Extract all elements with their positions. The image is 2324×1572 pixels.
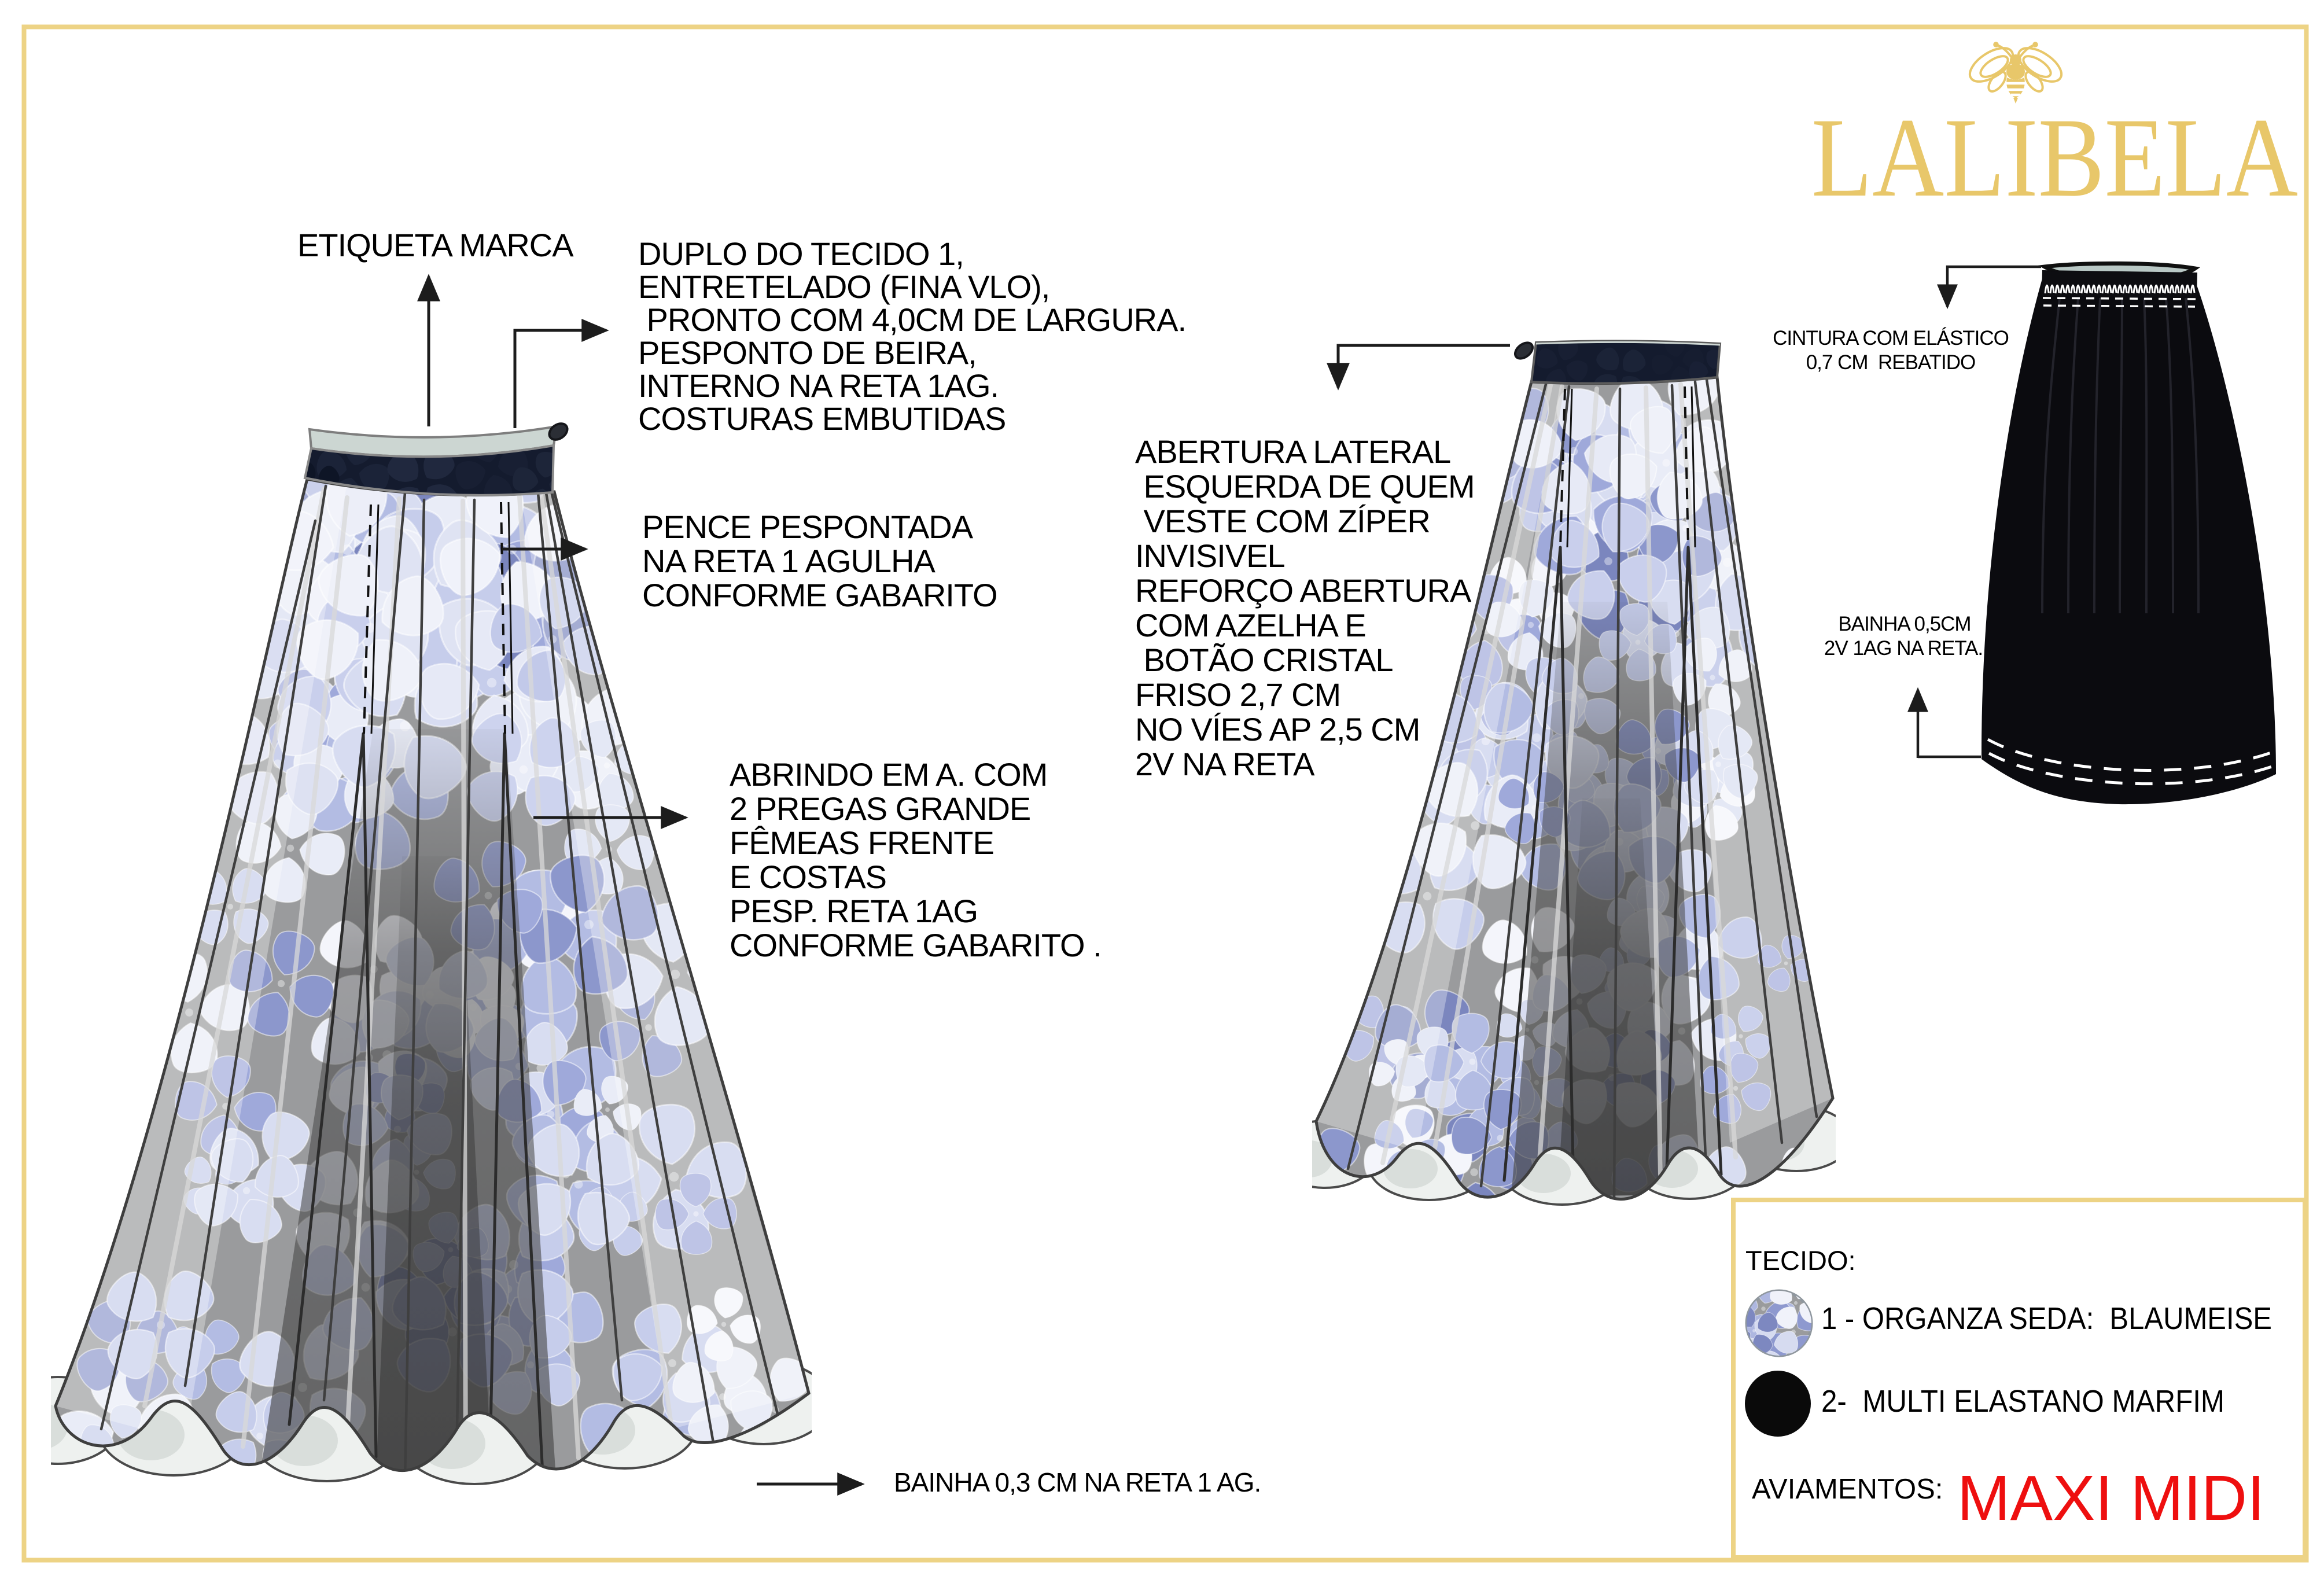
svg-text:CINTURA COM ELÁSTICO: CINTURA COM ELÁSTICO — [1773, 327, 2009, 349]
svg-text:LALIBELA: LALIBELA — [1811, 95, 2298, 220]
svg-text:MAXI MIDI: MAXI MIDI — [1957, 1463, 2265, 1534]
svg-text:BAINHA 0,5CM: BAINHA 0,5CM — [1838, 613, 1971, 635]
svg-text:1 - ORGANZA SEDA: BLAUMEISE: 1 - ORGANZA SEDA: BLAUMEISE — [1821, 1301, 2272, 1336]
svg-text:AVIAMENTOS:: AVIAMENTOS: — [1752, 1474, 1943, 1505]
svg-text:2- MULTI ELASTANO MARFIM: 2- MULTI ELASTANO MARFIM — [1821, 1384, 2224, 1419]
svg-text:TECIDO:: TECIDO: — [1745, 1245, 1856, 1276]
svg-text:BAINHA 0,3 CM NA RETA 1 AG.: BAINHA 0,3 CM NA RETA 1 AG. — [894, 1467, 1261, 1497]
svg-text:0,7 CM REBATIDO: 0,7 CM REBATIDO — [1806, 351, 1976, 374]
svg-text:2V 1AG NA RETA.: 2V 1AG NA RETA. — [1824, 637, 1983, 660]
svg-text:ETIQUETA MARCA: ETIQUETA MARCA — [297, 227, 574, 263]
